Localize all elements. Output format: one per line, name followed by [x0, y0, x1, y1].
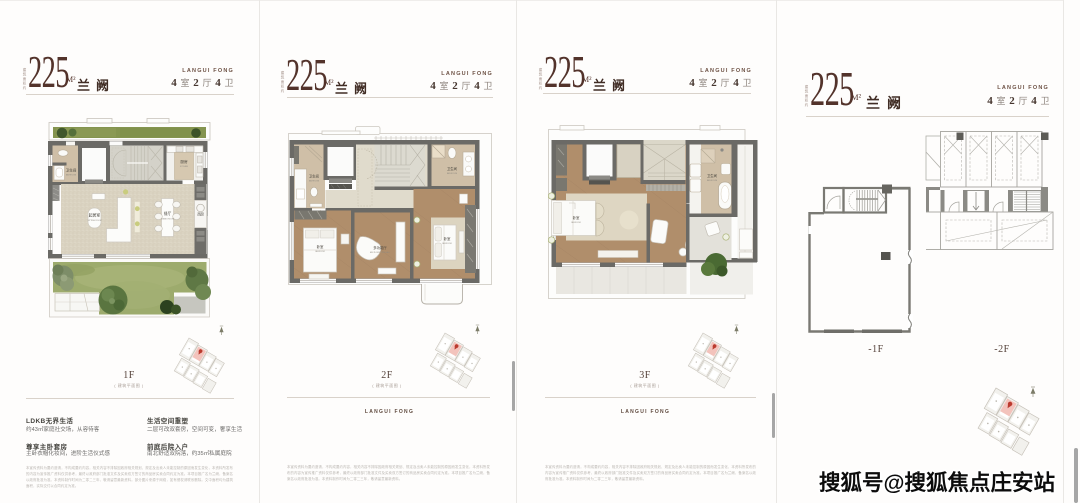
- svg-text:MULTI-FUNCTION HALL: MULTI-FUNCTION HALL: [370, 251, 390, 254]
- svg-text:卫生间: 卫生间: [66, 168, 77, 173]
- svg-text:BATHROOM: BATHROOM: [309, 180, 320, 183]
- svg-text:起居室: 起居室: [89, 213, 101, 218]
- svg-text:厨房: 厨房: [180, 159, 188, 164]
- svg-text:西厨: 西厨: [197, 212, 204, 217]
- svg-text:卫生间: 卫生间: [309, 174, 320, 179]
- svg-text:BEDROOM: BEDROOM: [315, 251, 325, 253]
- svg-text:卧室: 卧室: [573, 215, 580, 220]
- svg-text:BATHROOM: BATHROOM: [447, 172, 458, 175]
- svg-text:卧室: 卧室: [317, 244, 324, 249]
- svg-text:DINING ROOM: DINING ROOM: [161, 219, 174, 221]
- svg-text:BEDROOM: BEDROOM: [571, 222, 581, 224]
- svg-text:BATHROOM: BATHROOM: [66, 174, 77, 177]
- svg-text:SITTING ROOM: SITTING ROOM: [88, 220, 102, 222]
- svg-text:BEDROOM: BEDROOM: [442, 243, 452, 245]
- svg-text:卫生间: 卫生间: [447, 166, 458, 171]
- svg-text:BATHROOM: BATHROOM: [707, 179, 718, 182]
- svg-text:餐厅: 餐厅: [164, 211, 172, 216]
- svg-text:KITCHEN: KITCHEN: [180, 166, 189, 168]
- svg-text:多功能厅: 多功能厅: [373, 245, 387, 250]
- svg-text:卫生间: 卫生间: [707, 173, 718, 178]
- svg-text:卧室: 卧室: [444, 236, 451, 241]
